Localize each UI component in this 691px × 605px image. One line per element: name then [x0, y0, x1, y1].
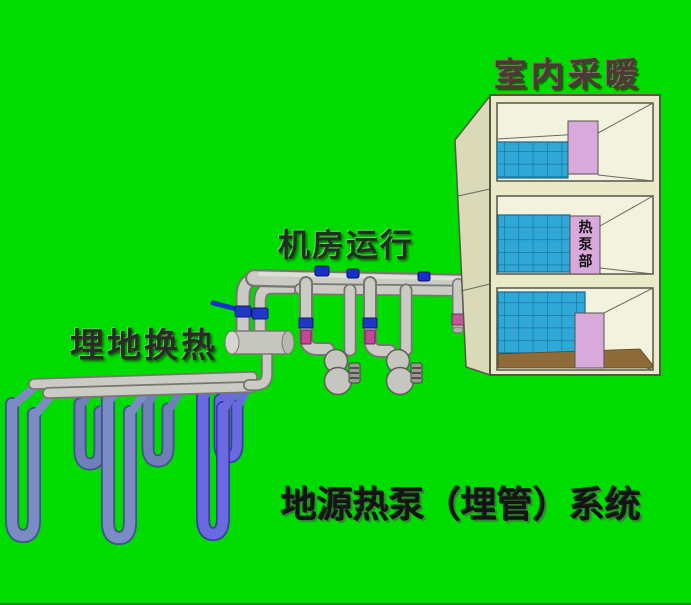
ground-loop-field [12, 352, 267, 538]
return-header-pipe [300, 289, 474, 291]
pink-panel [568, 121, 598, 174]
building [455, 95, 660, 375]
branch-valves [299, 314, 464, 344]
radiator-tiles [498, 292, 585, 353]
u-loop-long-2 [108, 381, 147, 538]
floor-top [497, 103, 653, 181]
loop-header-pipes [34, 377, 252, 393]
circulation-pump-2 [387, 350, 423, 395]
valve-blue [299, 318, 313, 328]
label-ground-heat-exchange: 埋地换热 [70, 318, 218, 367]
u-loop-long-1 [12, 385, 53, 536]
pink-panel [575, 313, 604, 368]
valve-magenta [301, 330, 311, 344]
valve-body [252, 308, 268, 319]
label-system-title: 地源热泵（埋管）系统 [281, 476, 641, 528]
radiator-tiles [498, 215, 570, 272]
valve-magenta [365, 330, 375, 344]
label-heat-pump-room: 热泵部 [575, 220, 596, 271]
label-machine-room: 机房运行 [278, 220, 414, 266]
circulation-pump-1 [325, 350, 361, 395]
radiator-tiles [497, 142, 568, 178]
loop-to-machine-room-pipe [249, 352, 267, 385]
valve-blue [363, 318, 377, 328]
buffer-tank [225, 331, 294, 354]
label-indoor-heating: 室内采暖 [494, 48, 642, 96]
valve-magenta [452, 314, 464, 325]
floor-bottom [497, 288, 653, 370]
scene-canvas: 室内采暖 机房运行 埋地换热 地源热泵（埋管）系统 热泵部 [0, 0, 691, 605]
valve-body [235, 306, 251, 317]
